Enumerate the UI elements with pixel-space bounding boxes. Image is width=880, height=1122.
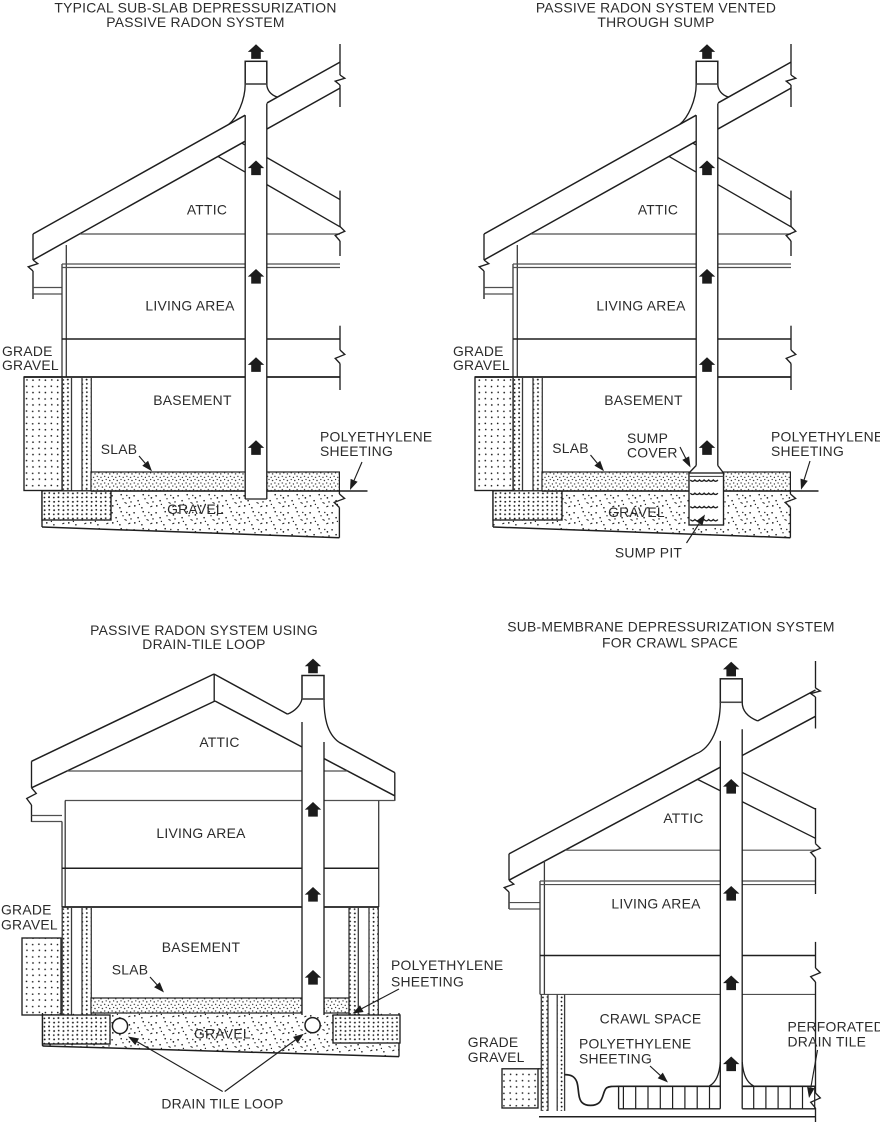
svg-text:ATTIC: ATTIC — [638, 202, 678, 218]
svg-text:SLAB: SLAB — [552, 440, 589, 456]
svg-text:LIVING AREA: LIVING AREA — [611, 896, 701, 912]
svg-text:GRAVEL: GRAVEL — [167, 501, 224, 517]
svg-text:SHEETING: SHEETING — [771, 443, 844, 459]
svg-text:SHEETING: SHEETING — [579, 1051, 652, 1067]
svg-text:POLYETHYLENE: POLYETHYLENE — [579, 1036, 691, 1052]
svg-text:CRAWL SPACE: CRAWL SPACE — [600, 1011, 702, 1027]
svg-text:LIVING AREA: LIVING AREA — [145, 298, 235, 314]
svg-text:GRAVEL: GRAVEL — [1, 917, 58, 933]
svg-text:SUB-MEMBRANE DEPRESSURIZATION: SUB-MEMBRANE DEPRESSURIZATION SYSTEM — [507, 619, 835, 635]
svg-text:SHEETING: SHEETING — [391, 974, 464, 990]
svg-text:SHEETING: SHEETING — [320, 443, 393, 459]
svg-text:GRADE: GRADE — [1, 902, 52, 918]
svg-text:PASSIVE RADON SYSTEM: PASSIVE RADON SYSTEM — [106, 14, 284, 30]
svg-text:GRAVEL: GRAVEL — [2, 357, 59, 373]
svg-text:ATTIC: ATTIC — [199, 734, 239, 750]
svg-text:GRAVEL: GRAVEL — [194, 1026, 251, 1042]
svg-text:DRAIN TILE: DRAIN TILE — [788, 1034, 867, 1050]
svg-text:COVER: COVER — [627, 444, 678, 460]
svg-text:GRAVEL: GRAVEL — [468, 1049, 525, 1065]
svg-text:POLYETHYLENE: POLYETHYLENE — [391, 957, 503, 973]
svg-text:FOR CRAWL SPACE: FOR CRAWL SPACE — [602, 635, 738, 651]
svg-text:BASEMENT: BASEMENT — [162, 939, 241, 955]
svg-text:GRAVEL: GRAVEL — [453, 357, 510, 373]
svg-text:SLAB: SLAB — [112, 962, 149, 978]
svg-text:THROUGH SUMP: THROUGH SUMP — [597, 14, 714, 30]
svg-text:DRAIN TILE LOOP: DRAIN TILE LOOP — [161, 1096, 283, 1112]
svg-text:LIVING AREA: LIVING AREA — [596, 298, 686, 314]
svg-text:GRADE: GRADE — [468, 1034, 519, 1050]
svg-text:DRAIN-TILE LOOP: DRAIN-TILE LOOP — [142, 636, 265, 652]
svg-text:SUMP PIT: SUMP PIT — [615, 545, 683, 561]
svg-text:PERFORATED: PERFORATED — [788, 1019, 880, 1035]
svg-text:GRAVEL: GRAVEL — [608, 504, 665, 520]
svg-text:LIVING AREA: LIVING AREA — [156, 825, 246, 841]
svg-text:ATTIC: ATTIC — [663, 810, 703, 826]
svg-text:SLAB: SLAB — [101, 441, 138, 457]
svg-text:ATTIC: ATTIC — [187, 202, 227, 218]
svg-text:BASEMENT: BASEMENT — [604, 392, 683, 408]
svg-text:BASEMENT: BASEMENT — [153, 392, 232, 408]
